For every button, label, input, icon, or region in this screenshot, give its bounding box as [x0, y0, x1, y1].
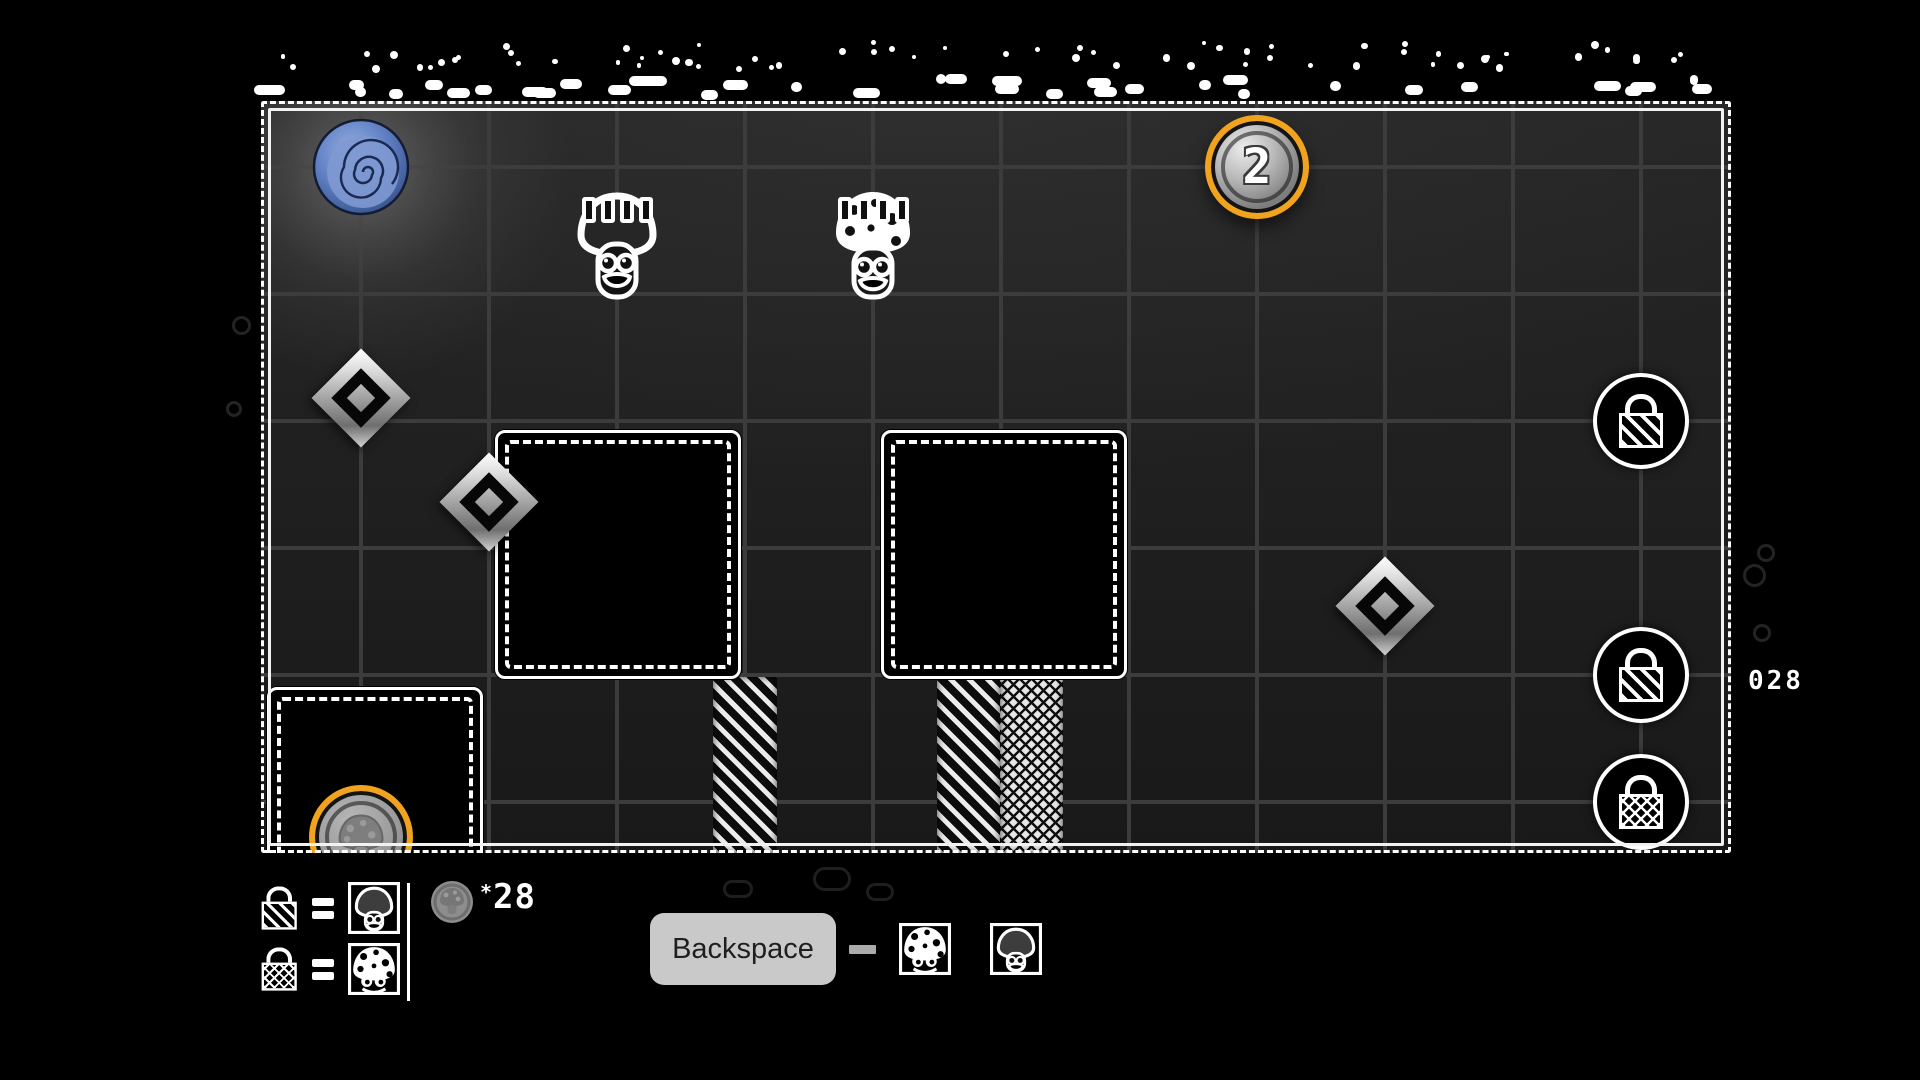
dust-dot	[658, 50, 663, 55]
coin-counter-value: 28	[493, 880, 536, 914]
mesh-lock-icon	[1619, 775, 1663, 829]
dust-dot	[889, 46, 895, 52]
striped-lock-icon	[260, 886, 298, 929]
dust-dash	[475, 85, 492, 95]
faint-bubble	[232, 316, 251, 335]
dust-dot	[769, 65, 774, 70]
dust-dash	[791, 82, 802, 92]
dust-dot	[1436, 51, 1441, 56]
dust-dash	[1199, 80, 1211, 90]
dust-dash	[936, 74, 946, 84]
grid-line-vertical	[1639, 101, 1643, 853]
stripes-lock-icon	[1619, 648, 1663, 702]
grid-line-vertical	[1383, 101, 1387, 853]
gem-facet	[440, 453, 539, 552]
dust-dot	[1401, 49, 1407, 55]
grid-line-vertical	[1127, 101, 1131, 853]
dust-dot	[736, 66, 742, 72]
dust-dot	[1671, 57, 1677, 63]
dust-dot	[1457, 62, 1464, 69]
dust-dash	[533, 88, 556, 98]
dust-dot	[1243, 62, 1248, 67]
dust-dash	[1046, 89, 1062, 99]
dust-dot	[1575, 53, 1582, 60]
dust-dot	[672, 57, 680, 65]
dust-dot	[1187, 62, 1195, 70]
dust-dash	[389, 89, 403, 99]
dust-dash	[349, 80, 364, 90]
lock-node-stripes[interactable]	[1593, 627, 1689, 723]
dust-dot	[1678, 52, 1683, 57]
dust-dot	[943, 46, 948, 51]
faint-bubble	[723, 880, 753, 898]
counter-mushroom-afro	[582, 197, 653, 223]
coin-counter: * 28	[430, 880, 536, 929]
dust-dash	[608, 85, 632, 95]
dust-dot	[1091, 50, 1096, 55]
counter-mushroom-spotted	[838, 197, 909, 223]
counter-digit-0	[582, 197, 596, 223]
equals-icon	[312, 959, 334, 980]
dust-dash	[425, 80, 443, 90]
dust-dot	[417, 64, 423, 70]
dust-dash	[629, 76, 657, 86]
gem-diamond[interactable]	[1333, 554, 1437, 658]
dust-dash	[447, 88, 470, 98]
dust-dot	[290, 64, 296, 70]
dust-dot	[640, 56, 644, 60]
dust-dot	[508, 50, 514, 56]
dust-dot	[1504, 52, 1509, 57]
lock-code-counter: 028	[1748, 666, 1804, 696]
dust-dot	[1402, 41, 1408, 47]
dust-dot	[516, 61, 521, 66]
dust-dot	[1267, 55, 1273, 61]
dust-dash	[1692, 84, 1712, 94]
spotted-mushroom-icon	[899, 923, 951, 975]
dust-dot	[372, 65, 380, 73]
grid-line-horizontal	[261, 292, 1731, 296]
dust-dot	[1035, 47, 1040, 52]
faint-bubble	[866, 883, 894, 901]
coin-counter-asterisk: *	[480, 882, 492, 902]
dust-dash	[1594, 81, 1621, 91]
blue-spiral-portal[interactable]	[311, 117, 411, 222]
dust-dot	[697, 43, 701, 47]
dust-dot	[637, 63, 641, 67]
faint-bubble	[226, 401, 242, 417]
dust-dot	[456, 55, 461, 60]
gem-diamond[interactable]	[309, 346, 413, 450]
faint-bubble	[1743, 564, 1766, 587]
dust-dash	[701, 90, 718, 100]
coin-icon	[430, 880, 474, 929]
wall-mesh	[1000, 673, 1063, 853]
faint-bubble	[813, 867, 851, 891]
dash-icon	[849, 945, 876, 954]
counter-digit-0	[601, 197, 615, 223]
dust-dash	[1330, 81, 1341, 91]
legend-divider	[407, 883, 410, 1001]
dust-dash	[723, 80, 748, 90]
mesh-lock-icon	[260, 947, 298, 990]
dust-dot	[1244, 48, 1250, 54]
grid-line-horizontal	[261, 165, 1731, 169]
dust-dash	[256, 85, 285, 95]
dust-dot	[871, 49, 877, 55]
faint-bubble	[1753, 624, 1771, 642]
wall-stripes	[937, 673, 1000, 853]
counter-digit-0	[620, 197, 634, 223]
dust-dot	[776, 62, 783, 69]
pit-hole	[881, 430, 1127, 679]
counter-digit-0	[838, 197, 852, 223]
playfield-interior: 2 5 5555	[261, 101, 1731, 853]
dust-dot	[912, 55, 916, 59]
counter-digit-0	[895, 197, 909, 223]
gem-facet	[312, 349, 411, 448]
lock-node-mesh[interactable]	[1593, 754, 1689, 850]
playfield: 2 5 5555	[261, 101, 1731, 853]
dust-dot	[1431, 62, 1436, 67]
dust-dot	[1496, 64, 1503, 71]
dust-dot	[1077, 45, 1083, 51]
counter-digit-0	[857, 197, 871, 223]
coin-2[interactable]: 2	[1205, 115, 1309, 219]
dust-dot	[1481, 55, 1488, 62]
dust-dot	[1361, 43, 1367, 49]
wall-stripes	[713, 677, 777, 853]
dust-dot	[1269, 44, 1274, 49]
grid-line-horizontal	[261, 419, 1731, 423]
dust-dot	[1633, 58, 1639, 64]
faint-bubble	[1757, 544, 1775, 562]
grid-line-vertical	[1511, 101, 1515, 853]
backspace-hint-row: Backspace	[650, 913, 1042, 985]
dust-dot	[685, 59, 693, 67]
dust-dot	[390, 51, 398, 59]
dust-dash	[1223, 75, 1248, 85]
dust-dot	[552, 59, 558, 65]
dust-dot	[1202, 41, 1206, 45]
dust-dash	[945, 74, 968, 84]
gem-diamond[interactable]	[437, 450, 541, 554]
coin-value: 2	[1243, 143, 1272, 191]
dust-dash	[1461, 82, 1478, 92]
dust-dash	[992, 76, 1022, 86]
dust-dot	[1003, 51, 1009, 57]
dust-dot	[503, 43, 510, 50]
afro-mushroom-icon	[348, 882, 400, 934]
dust-dot	[839, 48, 846, 55]
gem-facet	[1336, 557, 1435, 656]
counter-digit-0	[639, 197, 653, 223]
dust-dash	[560, 79, 582, 89]
lock-node-stripes[interactable]	[1593, 373, 1689, 469]
dust-dot	[1113, 62, 1120, 69]
lock-legend	[260, 880, 400, 1002]
dust-dot	[616, 60, 620, 64]
dust-dot	[1591, 41, 1599, 49]
dust-dot	[1163, 54, 1170, 61]
afro-mushroom-icon	[990, 923, 1042, 975]
dust-dot	[281, 54, 285, 58]
dust-dash	[1625, 86, 1643, 96]
dust-dot	[752, 56, 758, 62]
legend-row-mesh	[260, 941, 400, 997]
dust-dot	[364, 51, 370, 57]
backspace-button[interactable]: Backspace	[650, 913, 836, 985]
dust-dot	[1353, 62, 1361, 70]
game-stage: 2 5 5555 028	[0, 0, 1920, 1080]
legend-row-stripes	[260, 880, 400, 936]
dust-dash	[1094, 87, 1117, 97]
dust-dash	[1238, 89, 1250, 99]
dust-dot	[871, 40, 876, 45]
dust-dot	[1216, 45, 1222, 51]
spotted-mushroom-icon	[348, 943, 400, 995]
dust-dash	[1125, 84, 1144, 94]
pit-hole-dashed-border	[891, 440, 1117, 669]
dust-dot	[1072, 54, 1080, 62]
stripes-lock-icon	[1619, 394, 1663, 448]
dust-dot	[696, 64, 701, 69]
equals-icon	[312, 898, 334, 919]
dust-dot	[1605, 47, 1611, 53]
dust-dot	[428, 65, 433, 70]
dust-dot	[438, 59, 445, 66]
dust-dash	[853, 88, 880, 98]
dust-dot	[623, 45, 630, 52]
counter-digit-0	[876, 197, 890, 223]
dust-dash	[1405, 85, 1423, 95]
dust-dot	[1308, 63, 1313, 68]
